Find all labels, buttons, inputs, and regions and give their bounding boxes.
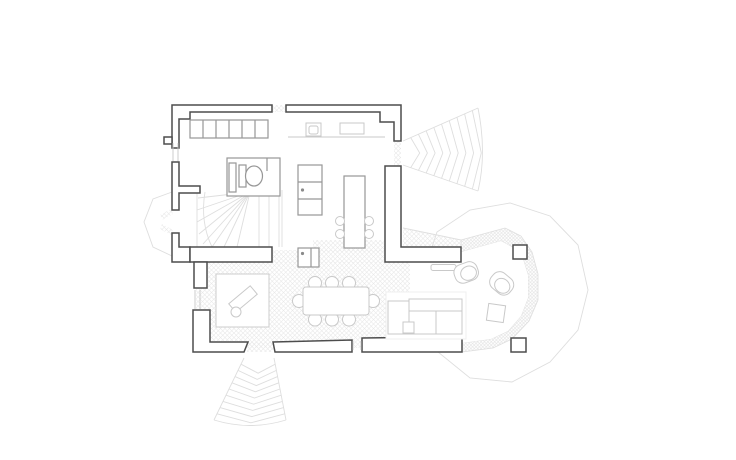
exterior-fan-steps-south: [214, 358, 286, 426]
console-table: [431, 265, 456, 271]
wall-stub-west: [194, 262, 207, 288]
column-northeast: [513, 245, 527, 259]
wall-middle-bar: [190, 247, 272, 262]
wall-bay-pier-upper: [172, 162, 200, 210]
appliance-cabinet: [298, 248, 319, 267]
wc-room: [227, 158, 280, 196]
wall-plinth: [164, 137, 172, 144]
threshold-east: [394, 141, 401, 166]
cooktop: [340, 123, 364, 134]
exterior-fan-steps-east: [403, 108, 483, 191]
sofa-side-table: [403, 322, 414, 333]
built-in-wardrobe: [190, 120, 268, 138]
appliance-handle: [301, 252, 304, 255]
rug-group: [216, 274, 269, 327]
winder-staircase: [197, 190, 282, 247]
wc-door-leaf: [229, 163, 236, 192]
kitchen-island: [344, 176, 365, 248]
sofa-group: [386, 292, 466, 339]
tall-cabinet: [298, 165, 322, 215]
kitchen-counter: [288, 123, 385, 137]
threshold-north: [272, 105, 286, 112]
chaise-table: [231, 307, 241, 317]
toilet-bowl: [246, 166, 263, 186]
cabinet-handle: [301, 188, 304, 191]
floor-plan-page: [0, 0, 736, 460]
bay-window-outline: [144, 192, 172, 256]
sink-basin: [309, 126, 318, 134]
column-southeast: [511, 338, 526, 352]
bay-sill-upper: [160, 209, 173, 220]
wall-south-a: [273, 340, 352, 352]
dining-table: [303, 287, 369, 315]
bay-sill-lower: [160, 224, 173, 235]
threshold-south: [247, 342, 273, 352]
conservatory-side-table: [486, 303, 505, 322]
wall-bay-pier-lower: [172, 233, 190, 262]
floor-plan-canvas: [0, 0, 736, 460]
